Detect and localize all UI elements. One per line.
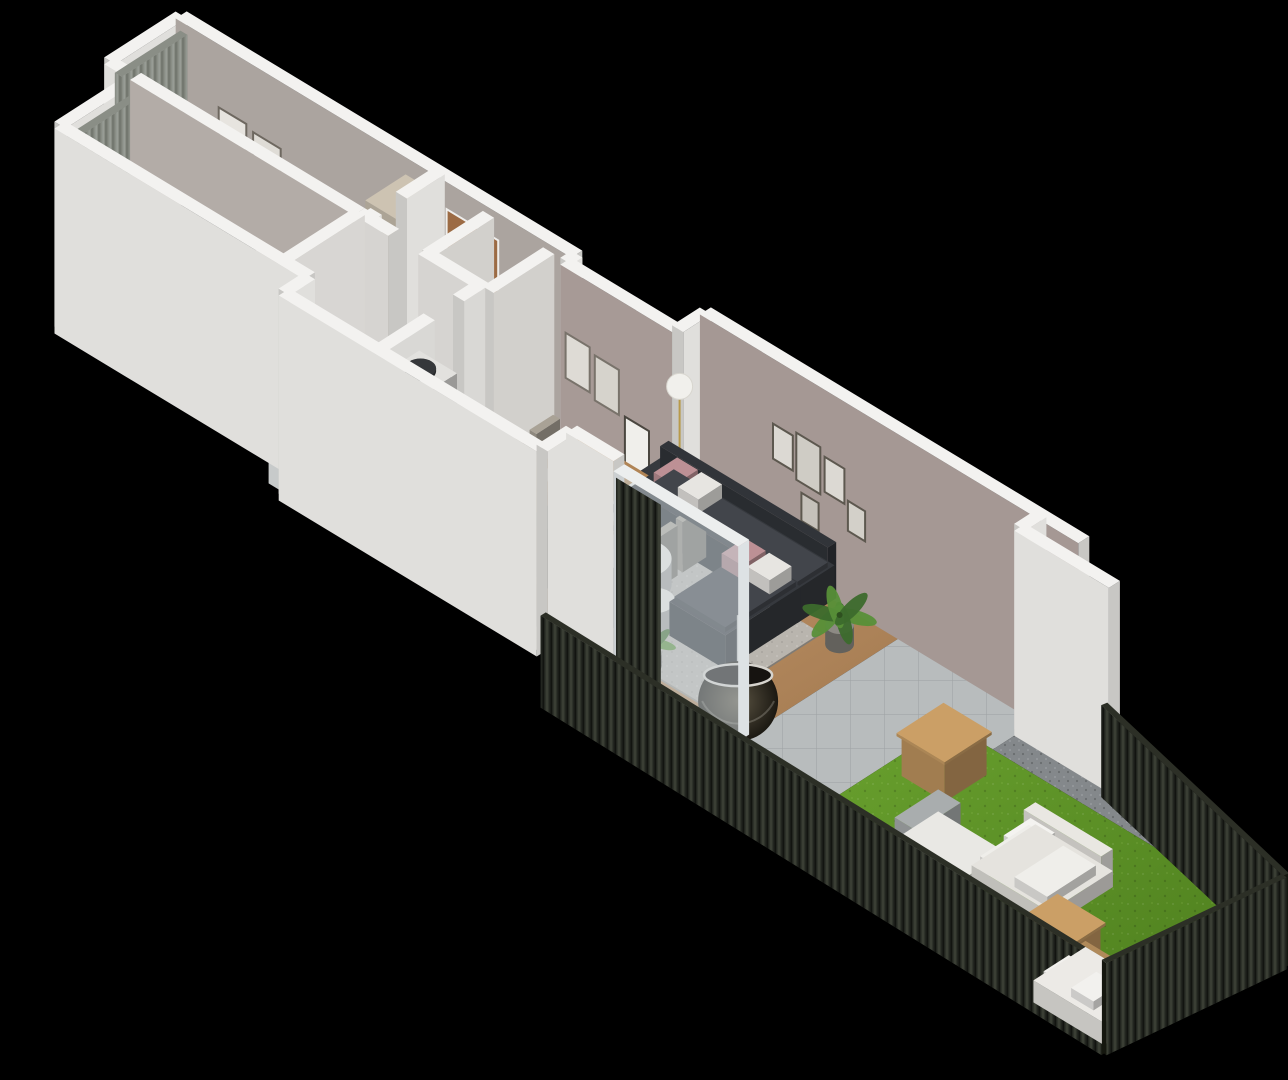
scene-svg — [0, 0, 1288, 1080]
floorplan-viewport — [0, 0, 1288, 1080]
